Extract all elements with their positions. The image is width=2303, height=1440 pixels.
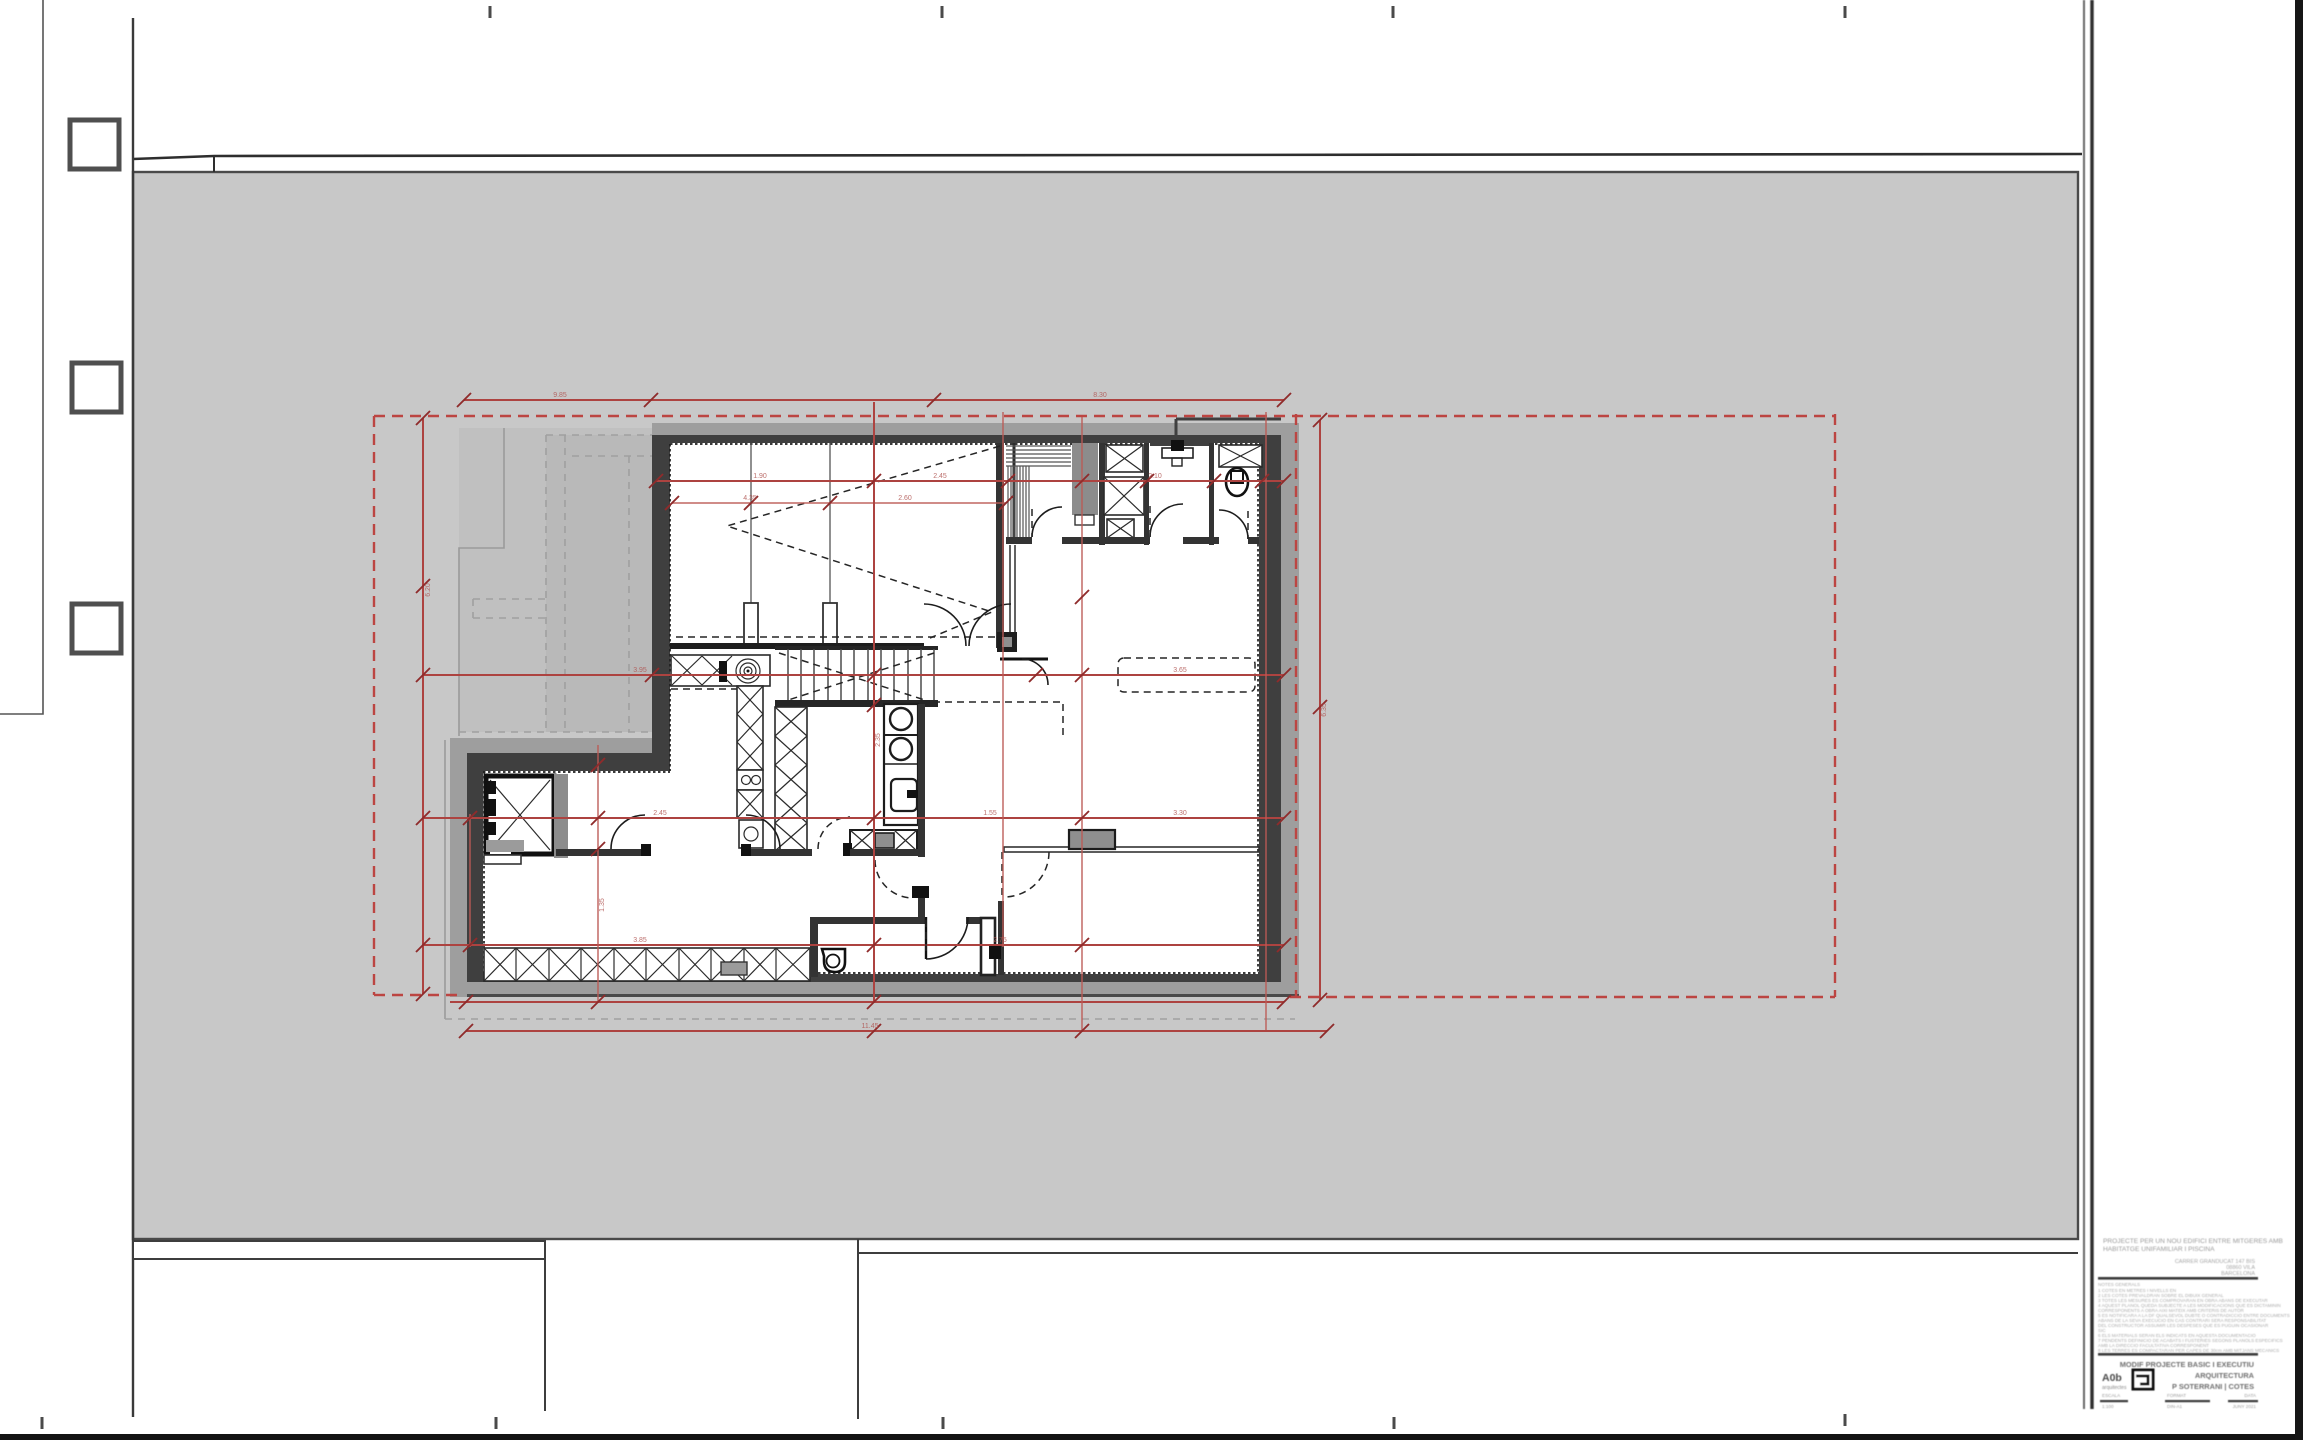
svg-text:FORMAT: FORMAT — [2167, 1393, 2186, 1398]
svg-text:6.35: 6.35 — [1321, 703, 1328, 717]
svg-text:8.30: 8.30 — [1093, 392, 1107, 399]
svg-text:1:100: 1:100 — [2102, 1404, 2114, 1409]
svg-text:PROJECTE PER UN NOU EDIFICI EN: PROJECTE PER UN NOU EDIFICI ENTRE MITGER… — [2103, 1238, 2283, 1245]
svg-text:P SOTERRANI | COTES: P SOTERRANI | COTES — [2172, 1382, 2254, 1391]
svg-text:HABITATGE UNIFAMILIAR I PISCIN: HABITATGE UNIFAMILIAR I PISCINA — [2103, 1246, 2215, 1253]
svg-text:2.75: 2.75 — [993, 937, 1007, 944]
svg-text:11.45: 11.45 — [862, 1023, 879, 1030]
svg-text:3.30: 3.30 — [1173, 810, 1187, 817]
svg-text:2.10: 2.10 — [1148, 473, 1162, 480]
svg-text:1.90: 1.90 — [753, 473, 767, 480]
svg-text:3.95: 3.95 — [633, 667, 647, 674]
svg-text:MODIF PROJECTE BASIC I EXECUT: MODIF PROJECTE BASIC I EXECUTIU — [2120, 1360, 2254, 1369]
svg-text:2.45: 2.45 — [653, 810, 667, 817]
svg-text:2.35: 2.35 — [875, 733, 882, 747]
svg-text:3.85: 3.85 — [633, 937, 647, 944]
svg-text:BARCELONA: BARCELONA — [2221, 1271, 2255, 1277]
svg-text:ESCALA: ESCALA — [2102, 1393, 2121, 1398]
svg-text:DIN-A1: DIN-A1 — [2167, 1404, 2183, 1409]
svg-text:DEL CONSTRUCTOR ASSUMIR LES DE: DEL CONSTRUCTOR ASSUMIR LES DESPESES QUE… — [2098, 1323, 2269, 1328]
svg-text:1.55: 1.55 — [983, 810, 997, 817]
svg-text:NOTES GENERALS: NOTES GENERALS — [2098, 1282, 2140, 1287]
svg-text:2.60: 2.60 — [898, 495, 912, 502]
svg-text:ARQUITECTURA: ARQUITECTURA — [2195, 1371, 2255, 1380]
svg-text:6.20: 6.20 — [425, 583, 432, 597]
svg-text:DATA: DATA — [2244, 1393, 2257, 1398]
svg-text:8 LES TERRES ES COMPACTARAN PE: 8 LES TERRES ES COMPACTARAN PER CAPES DE… — [2098, 1348, 2279, 1353]
svg-text:4.35: 4.35 — [743, 495, 757, 502]
svg-text:1.35: 1.35 — [599, 898, 606, 912]
svg-text:A0b: A0b — [2102, 1372, 2122, 1384]
svg-text:3.65: 3.65 — [1173, 667, 1187, 674]
svg-text:9.85: 9.85 — [553, 392, 567, 399]
svg-text:2.45: 2.45 — [933, 473, 947, 480]
svg-text:arquitectes: arquitectes — [2102, 1385, 2127, 1391]
svg-text:JUNY 2021: JUNY 2021 — [2233, 1404, 2257, 1409]
